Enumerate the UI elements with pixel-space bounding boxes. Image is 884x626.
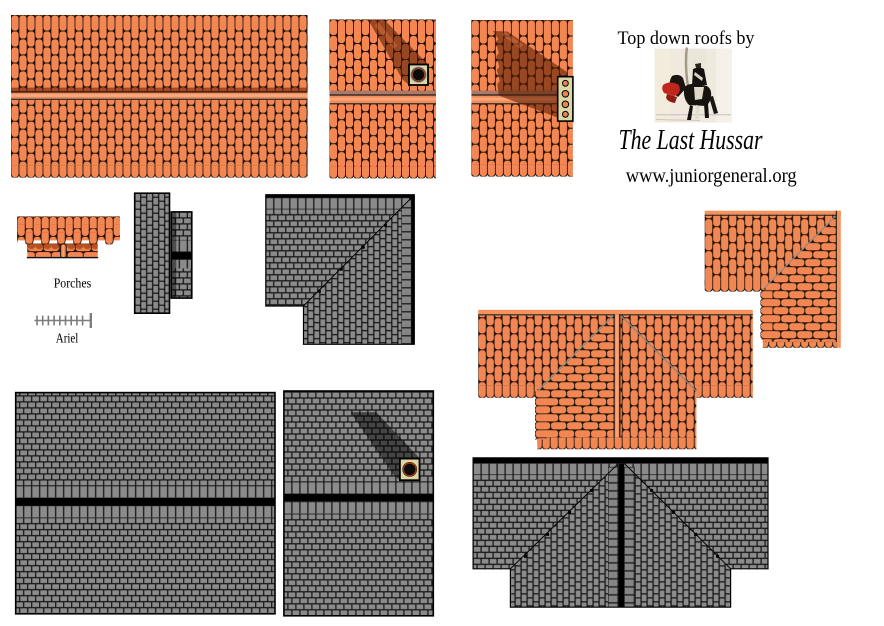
svg-text:Ariel: Ariel [56, 332, 79, 347]
svg-text:The Last Hussar: The Last Hussar [619, 125, 763, 156]
svg-text:www.juniorgeneral.org: www.juniorgeneral.org [626, 165, 797, 187]
svg-text:Porches: Porches [54, 277, 91, 292]
svg-text:Top down roofs by: Top down roofs by [618, 28, 755, 49]
